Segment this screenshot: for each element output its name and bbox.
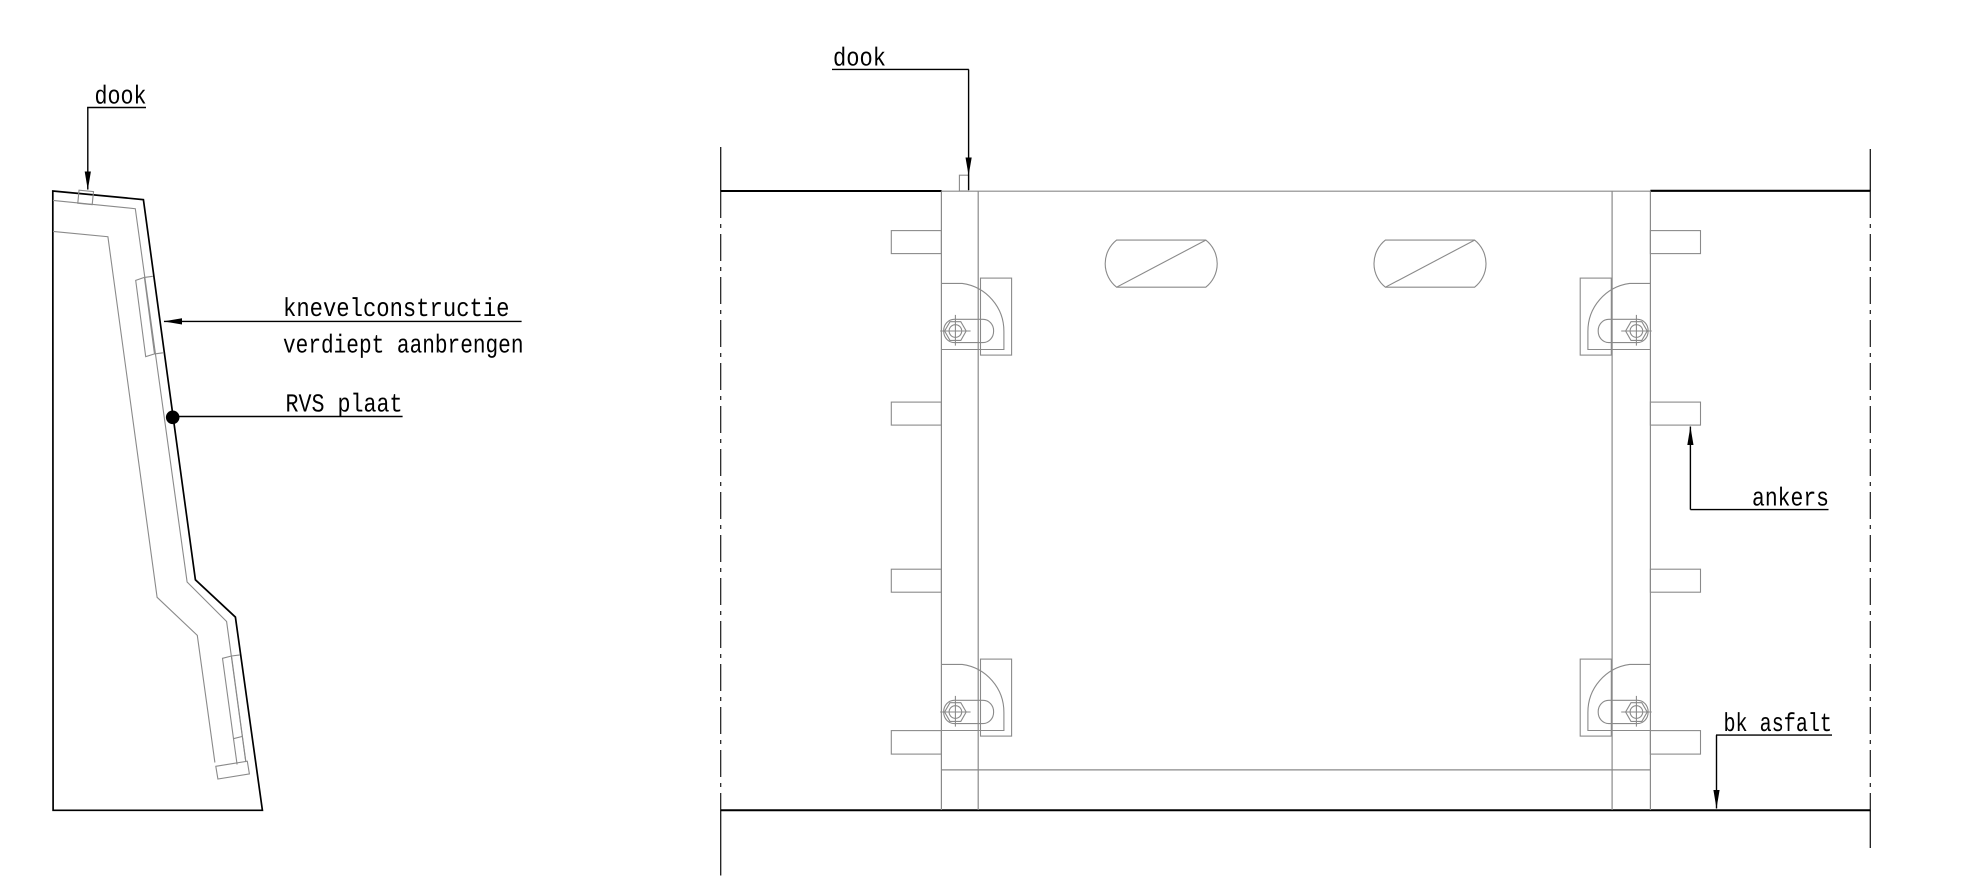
svg-text:RVS plaat: RVS plaat [286,390,403,420]
svg-text:verdiept aanbrengen: verdiept aanbrengen [283,331,524,361]
svg-text:knevelconstructie: knevelconstructie [283,294,510,324]
